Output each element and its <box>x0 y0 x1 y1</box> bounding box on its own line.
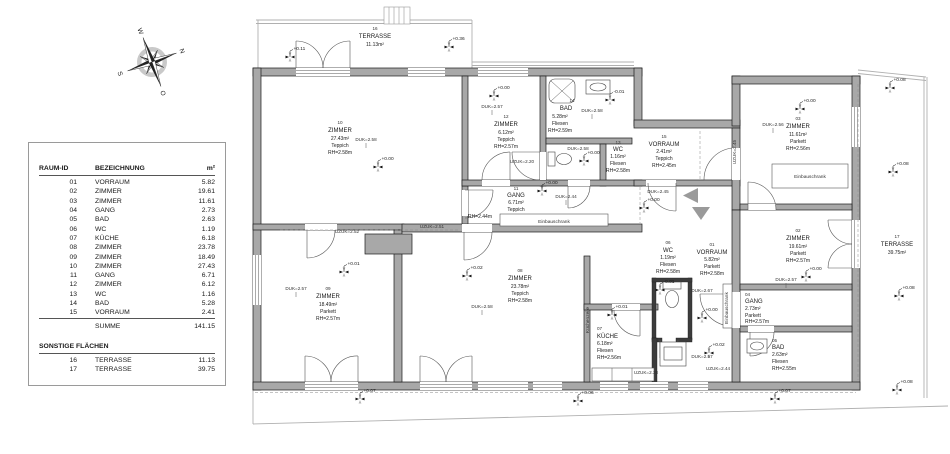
compass-north-label: N <box>178 48 186 55</box>
elevation-marker: +0.36 <box>445 36 465 52</box>
svg-text:+0.08: +0.08 <box>901 379 913 385</box>
svg-text:+0.01: +0.01 <box>348 261 360 267</box>
duk-label: DUK=2.57 <box>481 104 503 115</box>
svg-text:+0.00: +0.00 <box>810 266 822 272</box>
room-label-13: 13 WC 1.16m² Fliesen RH=2.58m <box>606 140 630 174</box>
duk-label: DUK=2.57 <box>285 286 307 297</box>
svg-text:06: 06 <box>665 240 671 245</box>
svg-text:DUK=2.67: DUK=2.67 <box>691 288 713 293</box>
svg-text:Teppich: Teppich <box>497 137 514 143</box>
floorplan-drawing: 01 VORRAUM 5.82m² Parkett RH=2.58m 02 ZI… <box>0 0 950 454</box>
room-label-02: 02 ZIMMER 19.61m² Parkett RH=2.57m <box>786 228 811 264</box>
svg-text:DUK=2.58: DUK=2.58 <box>355 137 377 142</box>
french-door-room08-south <box>420 356 472 390</box>
svg-text:14: 14 <box>569 98 575 103</box>
svg-text:13: 13 <box>615 140 621 145</box>
svg-text:TERRASSE: TERRASSE <box>881 242 913 248</box>
french-door-room09-south <box>305 356 358 390</box>
elevation-marker: +0.00 <box>796 98 816 114</box>
toilet-wc06 <box>663 282 681 308</box>
svg-text:5.82m²: 5.82m² <box>704 257 720 263</box>
uzuk-label: UZUK=2.45 <box>732 139 737 164</box>
room-label-05: 05 BAD 2.63m² Fliesen RH=2.55m <box>772 338 796 372</box>
svg-text:DUK=2.57: DUK=2.57 <box>481 104 503 109</box>
svg-text:+0.00: +0.00 <box>382 156 394 162</box>
svg-text:+0.07: +0.07 <box>364 388 376 394</box>
svg-text:DUK=2.44: DUK=2.44 <box>555 194 577 199</box>
svg-text:11.61m²: 11.61m² <box>789 132 807 138</box>
compass-west-label: W <box>135 27 144 36</box>
svg-text:01: 01 <box>709 242 715 247</box>
terrace-label-17: 17 TERRASSE 39.75m² <box>881 234 913 256</box>
sink-bad14 <box>586 80 610 94</box>
room-label-14: 14 BAD 5.28m² Fliesen RH=2.59m <box>548 98 575 134</box>
terrace-label-16: 16 TERRASSE 11.13m² <box>359 26 391 48</box>
svg-text:07: 07 <box>597 326 603 331</box>
svg-text:ZIMMER: ZIMMER <box>316 294 340 300</box>
svg-text:RH=2.58m: RH=2.58m <box>606 168 630 174</box>
toilet-wc13 <box>548 152 572 166</box>
uzuk-label: UZUK=2.28 <box>634 370 659 375</box>
french-door-room02-east <box>828 220 860 268</box>
svg-text:05: 05 <box>772 338 778 343</box>
room-label-04: 04 GANG 2.73m² Parkett RH=2.57m <box>745 292 769 325</box>
svg-text:02: 02 <box>795 228 801 233</box>
svg-text:VORRAUM: VORRAUM <box>697 250 728 256</box>
floorplan-page: RAUM-ID BEZEICHNUNG m² 01VORRAUM5.82 02Z… <box>0 0 950 454</box>
svg-text:ZIMMER: ZIMMER <box>508 276 532 282</box>
svg-text:09: 09 <box>325 286 331 291</box>
svg-text:GANG: GANG <box>507 193 525 199</box>
room-label-03: 03 ZIMMER 11.61m² Parkett RH=2.56m <box>786 116 811 152</box>
svg-text:RH=2.58m: RH=2.58m <box>328 150 352 156</box>
svg-text:2.41m²: 2.41m² <box>656 149 672 155</box>
svg-text:RH=2.56m: RH=2.56m <box>786 146 810 152</box>
svg-text:TERRASSE: TERRASSE <box>359 34 391 40</box>
svg-text:DUK=2.57: DUK=2.57 <box>691 354 713 359</box>
svg-text:DUK=2.58: DUK=2.58 <box>471 304 493 309</box>
svg-text:DUK=2.56: DUK=2.56 <box>762 122 784 127</box>
svg-text:Parkett: Parkett <box>790 139 806 145</box>
svg-text:04: 04 <box>745 292 751 297</box>
svg-text:RH=2.45m: RH=2.45m <box>652 163 676 169</box>
svg-text:Fliesen: Fliesen <box>552 121 568 127</box>
svg-text:1.19m²: 1.19m² <box>660 255 676 261</box>
svg-text:RH=2.57m: RH=2.57m <box>745 319 769 325</box>
svg-text:ZIMMER: ZIMMER <box>328 128 352 134</box>
einbauschrank-label-room03: Einbauschrank <box>794 174 826 180</box>
elevation-marker: +0.02 <box>463 265 483 281</box>
svg-text:Teppich: Teppich <box>655 156 672 162</box>
duk-label: DUK=2.58 <box>355 137 377 148</box>
svg-text:RH=2.59m: RH=2.59m <box>548 128 572 134</box>
kitchen-sink <box>660 342 686 366</box>
svg-text:16: 16 <box>372 26 378 31</box>
svg-text:+0.00: +0.00 <box>706 307 718 313</box>
svg-text:DUK=2.57: DUK=2.57 <box>285 286 307 291</box>
svg-text:DUK=2.45: DUK=2.45 <box>647 189 669 194</box>
elevation-marker: +0.00 <box>802 266 822 282</box>
svg-text:18.49m²: 18.49m² <box>319 302 338 308</box>
svg-text:Fliesen: Fliesen <box>660 262 676 268</box>
svg-text:+0.00: +0.00 <box>546 180 558 186</box>
svg-text:RH=2.58m: RH=2.58m <box>656 269 680 275</box>
uzuk-label: UZUK=2.52 <box>335 229 360 234</box>
svg-text:10: 10 <box>337 120 343 125</box>
svg-text:Teppich: Teppich <box>511 291 528 297</box>
window-bottom-4 <box>640 382 668 390</box>
svg-text:-0.01: -0.01 <box>664 279 675 285</box>
svg-text:5.28m²: 5.28m² <box>552 114 568 120</box>
svg-text:RH=2.56m: RH=2.56m <box>597 355 621 361</box>
svg-text:RH=2.57m: RH=2.57m <box>316 316 340 322</box>
svg-text:6.18m²: 6.18m² <box>597 341 613 347</box>
svg-text:WC: WC <box>663 248 674 254</box>
svg-text:+0.07: +0.07 <box>779 388 791 394</box>
room-label-15: 15 VORRAUM 2.41m² Teppich RH=2.45m <box>649 134 680 169</box>
svg-text:RH=2.58m: RH=2.58m <box>700 271 724 277</box>
stairs <box>384 7 410 24</box>
svg-text:+0.02: +0.02 <box>713 342 725 348</box>
svg-text:GANG: GANG <box>745 299 763 305</box>
svg-text:15: 15 <box>661 134 667 139</box>
svg-text:Fliesen: Fliesen <box>597 348 613 354</box>
svg-text:19.61m²: 19.61m² <box>789 244 808 250</box>
svg-text:ZIMMER: ZIMMER <box>786 124 810 130</box>
svg-text:+0.08: +0.08 <box>903 285 915 291</box>
svg-text:+0.00: +0.00 <box>804 98 816 104</box>
svg-text:2.73m²: 2.73m² <box>745 306 761 312</box>
svg-text:RH=2.58m: RH=2.58m <box>508 298 532 304</box>
window-bottom-5 <box>678 382 708 390</box>
svg-text:+0.08: +0.08 <box>894 77 906 83</box>
sink-bad05 <box>747 339 767 353</box>
svg-text:1.16m²: 1.16m² <box>610 154 626 160</box>
uzuk-label: UZUK=2.44 <box>706 366 731 371</box>
elevation-marker: +0.00 <box>490 85 510 101</box>
elevation-marker: +0.08 <box>886 77 906 93</box>
svg-text:Parkett: Parkett <box>790 251 806 257</box>
svg-text:RH=2.57m: RH=2.57m <box>786 258 810 264</box>
svg-text:+0.00: +0.00 <box>648 197 660 203</box>
svg-text:Parkett: Parkett <box>704 264 720 270</box>
compass-south-label: S <box>116 71 124 78</box>
room-label-10: 10 ZIMMER 27.43m² Teppich RH=2.58m <box>328 120 353 156</box>
room-label-07: 07 KÜCHE 6.18m² Fliesen RH=2.56m <box>597 326 621 361</box>
room-label-06: 06 WC 1.19m² Fliesen RH=2.58m <box>656 240 680 275</box>
svg-text:Fliesen: Fliesen <box>610 161 626 167</box>
svg-text:6.12m²: 6.12m² <box>498 130 514 136</box>
duk-label: DUK=2.58 <box>567 146 589 151</box>
svg-text:-0.01: -0.01 <box>614 89 625 95</box>
duk-label: DUK=2.57 <box>691 354 713 359</box>
svg-text:2.63m²: 2.63m² <box>772 352 788 358</box>
svg-text:DUK=2.57: DUK=2.57 <box>775 277 797 282</box>
einbauschrank-label-gang04: Einbauschrank <box>724 292 730 324</box>
duk-label: DUK=2.58 <box>471 304 493 315</box>
svg-text:12: 12 <box>503 114 509 119</box>
elevation-marker: +0.01 <box>340 261 360 277</box>
elevation-marker: +0.08 <box>893 379 913 395</box>
duk-label: DUK=2.44 <box>555 194 577 205</box>
svg-text:BAD: BAD <box>560 106 573 112</box>
window-bottom-3 <box>600 382 628 390</box>
svg-text:RH=2.44m: RH=2.44m <box>468 214 492 220</box>
room-label-08: 08 ZIMMER 23.78m² Teppich RH=2.58m <box>508 268 533 304</box>
svg-text:+0.08: +0.08 <box>897 161 909 167</box>
window-top-1 <box>408 68 445 76</box>
svg-text:+0.06: +0.06 <box>582 390 594 396</box>
einbauschrank-label-gang11: Einbauschrank <box>538 219 570 225</box>
svg-text:39.75m²: 39.75m² <box>888 250 907 256</box>
svg-text:27.43m²: 27.43m² <box>331 136 350 142</box>
room-label-01: 01 VORRAUM 5.82m² Parkett RH=2.58m <box>697 242 728 277</box>
svg-text:Parkett: Parkett <box>320 309 336 315</box>
entrance-arrows <box>683 188 710 220</box>
compass-star <box>119 29 186 96</box>
duk-label: DUK=2.67 <box>691 288 713 293</box>
svg-text:ZIMMER: ZIMMER <box>494 122 518 128</box>
compass-rose: N O S W <box>104 16 197 108</box>
window-bottom-2 <box>533 382 562 390</box>
svg-text:RH=2.57m: RH=2.57m <box>494 144 518 150</box>
svg-text:17: 17 <box>894 234 900 239</box>
window-left <box>253 255 261 305</box>
svg-text:DUK=2.58: DUK=2.58 <box>581 108 603 113</box>
window-top-2 <box>478 68 528 76</box>
svg-text:23.78m²: 23.78m² <box>511 284 530 290</box>
svg-text:KÜCHE: KÜCHE <box>597 333 618 340</box>
uzuk-label: UZUK=2.20 <box>510 159 535 164</box>
svg-text:Teppich: Teppich <box>507 207 524 213</box>
svg-text:WC: WC <box>613 147 624 153</box>
svg-text:ZIMMER: ZIMMER <box>786 236 810 242</box>
compass-east-label: O <box>158 90 166 97</box>
svg-text:VORRAUM: VORRAUM <box>649 142 680 148</box>
elevation-marker: +0.08 <box>895 285 915 301</box>
svg-text:+0.36: +0.36 <box>453 36 465 42</box>
svg-text:+0.00: +0.00 <box>588 150 600 156</box>
room-label-09: 09 ZIMMER 18.49m² Parkett RH=2.57m <box>316 286 341 322</box>
svg-text:6.71m²: 6.71m² <box>508 200 524 206</box>
kuechenzeile-label: Küchenzeile <box>585 307 591 333</box>
entry-arrow-left-icon <box>683 188 698 203</box>
room-label-12: 12 ZIMMER 6.12m² Teppich RH=2.57m <box>494 114 519 150</box>
svg-text:+0.00: +0.00 <box>498 85 510 91</box>
svg-text:DUK=2.58: DUK=2.58 <box>567 146 589 151</box>
duk-label: DUK=2.58 <box>581 108 603 119</box>
window-room03-east <box>852 107 860 147</box>
elevation-marker: +0.00 <box>580 150 600 166</box>
svg-text:11: 11 <box>514 186 519 191</box>
elevation-marker: +0.00 <box>640 197 660 213</box>
svg-text:11.13m²: 11.13m² <box>366 42 384 48</box>
elevation-marker: +0.00 <box>374 156 394 172</box>
svg-text:03: 03 <box>795 116 801 121</box>
entry-arrow-down-icon <box>692 207 710 220</box>
svg-text:08: 08 <box>517 268 523 273</box>
svg-text:+0.11: +0.11 <box>294 46 306 52</box>
duk-label: DUK=2.56 <box>762 122 784 133</box>
elevation-marker: +0.08 <box>889 161 909 177</box>
svg-text:BAD: BAD <box>772 345 785 351</box>
svg-text:Fliesen: Fliesen <box>772 359 788 365</box>
elevation-marker: +0.11 <box>286 46 306 62</box>
duk-label: DUK=2.45 <box>647 189 669 194</box>
svg-text:+0.02: +0.02 <box>471 265 483 271</box>
svg-text:RH=2.55m: RH=2.55m <box>772 366 796 372</box>
svg-text:+0.01: +0.01 <box>616 304 628 310</box>
uzuk-label: UZUK=2.51 <box>420 224 445 229</box>
svg-text:Teppich: Teppich <box>331 143 348 149</box>
window-bottom-1 <box>478 382 528 390</box>
